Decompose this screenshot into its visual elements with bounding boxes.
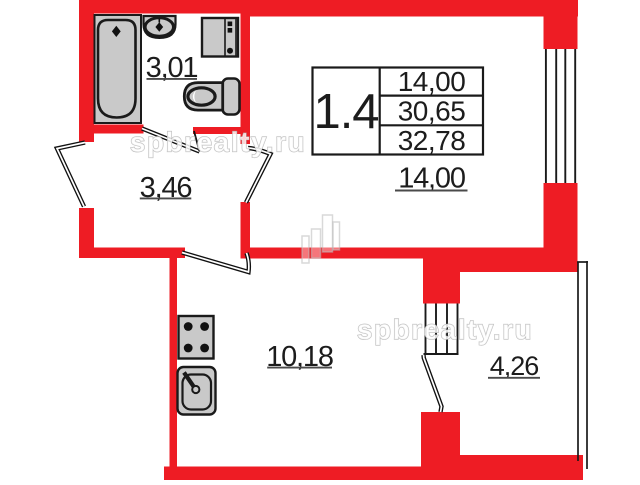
svg-text:4,26: 4,26 <box>490 351 539 381</box>
svg-text:1.4: 1.4 <box>313 85 378 139</box>
svg-text:30,65: 30,65 <box>398 95 466 126</box>
svg-text:spbrealty.ru: spbrealty.ru <box>357 314 533 345</box>
svg-text:14,00: 14,00 <box>398 66 466 97</box>
svg-text:32,78: 32,78 <box>398 125 466 156</box>
svg-text:spbrealty.ru: spbrealty.ru <box>130 127 306 158</box>
